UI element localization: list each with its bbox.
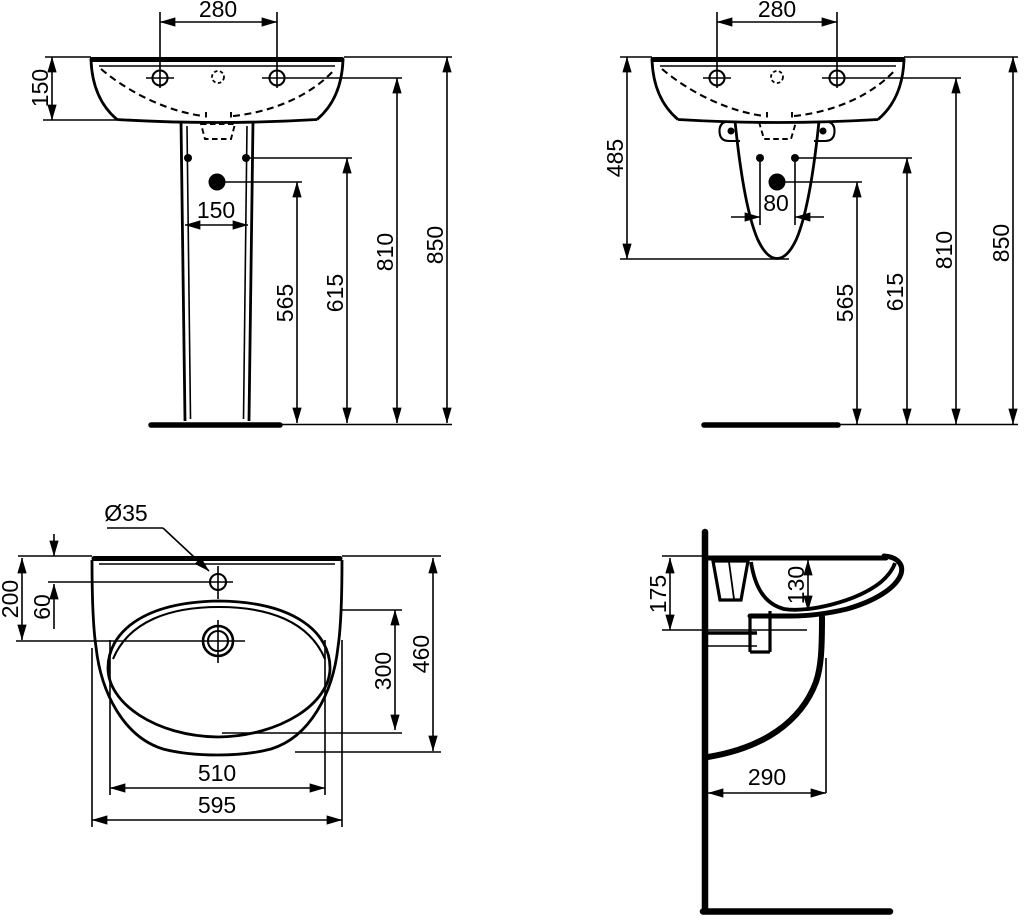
- dim-label-850: 850: [422, 226, 448, 264]
- dim-label-290: 290: [748, 764, 786, 790]
- dim-label-615: 615: [882, 273, 908, 311]
- dim-label-850: 850: [988, 224, 1014, 262]
- trap-outlet-hole: [209, 174, 226, 191]
- dim-label-rim-depth: 150: [27, 69, 53, 107]
- dim-label-200: 200: [0, 580, 23, 618]
- dim-label-810: 810: [931, 231, 957, 269]
- dim-label-tap-diameter: Ø35: [104, 500, 147, 526]
- lug-screw-right: [820, 128, 827, 135]
- dim-label-565: 565: [832, 284, 858, 322]
- dim-label-615: 615: [322, 274, 348, 312]
- dim-label-pedestal-fixing-width: 150: [197, 197, 235, 223]
- technical-drawing-canvas: 280 150 150 565 615 810 850: [0, 0, 1024, 921]
- pedestal-fixing-hole-right: [242, 154, 250, 162]
- pedestal-fixing-hole-left: [184, 154, 192, 162]
- lug-screw-left: [728, 128, 735, 135]
- dim-label-175: 175: [645, 575, 671, 613]
- dim-label-80: 80: [763, 190, 789, 216]
- drawing-sheet: 280 150 150 565 615 810 850: [0, 0, 1024, 921]
- dim-label-60: 60: [29, 594, 55, 620]
- dim-label-tap-centres: 280: [199, 0, 237, 22]
- fixing-hole-left: [756, 154, 764, 162]
- dim-label-300: 300: [370, 652, 396, 690]
- fixing-hole-right: [791, 154, 799, 162]
- dim-label-810: 810: [372, 233, 398, 271]
- dim-label-565: 565: [272, 284, 298, 322]
- dim-label-460: 460: [408, 635, 434, 673]
- paper-background: [0, 0, 1024, 921]
- trap-outlet-hole: [769, 174, 786, 191]
- dim-label-130: 130: [783, 566, 809, 604]
- dim-label-595: 595: [198, 792, 236, 818]
- dim-label-510: 510: [198, 760, 236, 786]
- dim-label-485: 485: [602, 139, 628, 177]
- dim-label-tap-centres: 280: [758, 0, 796, 22]
